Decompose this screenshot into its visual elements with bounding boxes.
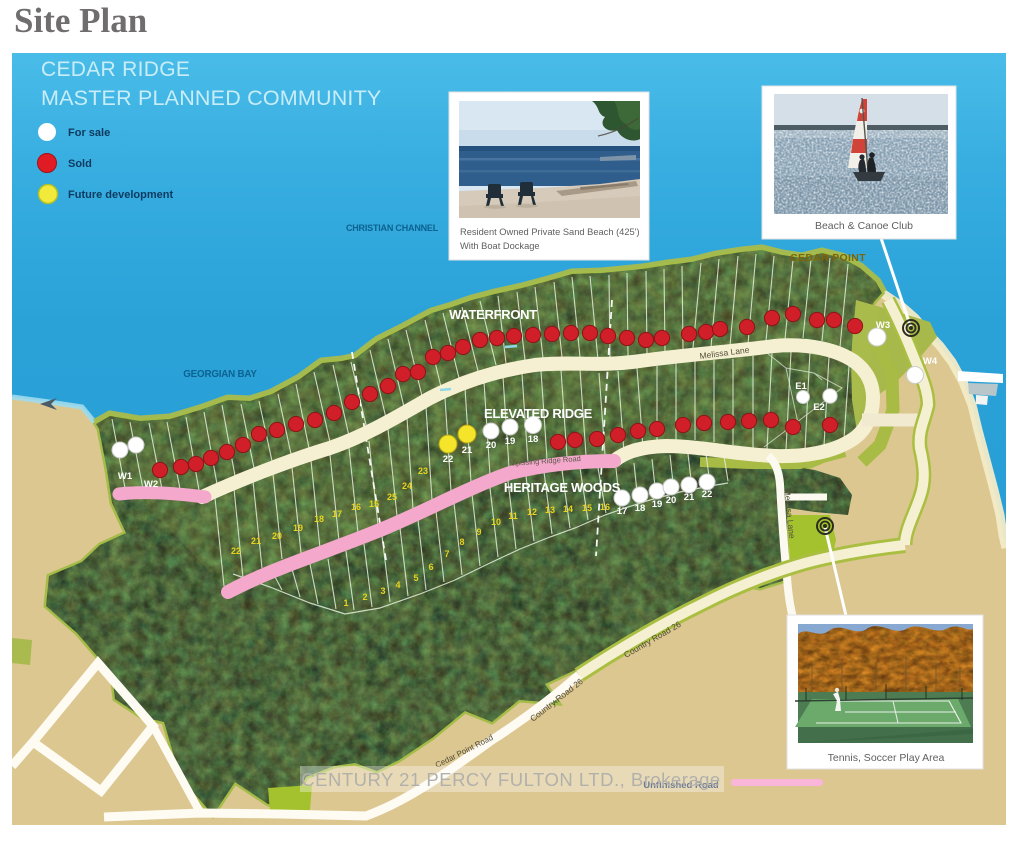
svg-text:19: 19 <box>505 436 516 447</box>
svg-text:20: 20 <box>272 531 282 541</box>
svg-text:22: 22 <box>443 454 454 465</box>
svg-text:19: 19 <box>293 523 303 533</box>
svg-text:14: 14 <box>563 504 573 514</box>
svg-text:HERITAGE WOODS: HERITAGE WOODS <box>504 480 621 495</box>
svg-text:MASTER PLANNED COMMUNITY: MASTER PLANNED COMMUNITY <box>41 86 381 110</box>
svg-text:17: 17 <box>332 509 342 519</box>
svg-text:E2: E2 <box>813 402 825 413</box>
svg-text:CHRISTIAN CHANNEL: CHRISTIAN CHANNEL <box>346 223 439 233</box>
svg-text:2: 2 <box>362 592 367 602</box>
svg-text:CEDAR POINT: CEDAR POINT <box>790 252 866 264</box>
svg-text:W3: W3 <box>876 320 890 331</box>
svg-text:For sale: For sale <box>68 127 110 139</box>
svg-text:19: 19 <box>652 499 663 510</box>
svg-text:17: 17 <box>617 506 628 517</box>
svg-text:25: 25 <box>387 492 397 502</box>
svg-text:20: 20 <box>666 495 677 506</box>
svg-text:18: 18 <box>528 434 539 445</box>
svg-text:10: 10 <box>491 517 501 527</box>
svg-text:9: 9 <box>476 527 481 537</box>
svg-text:6: 6 <box>428 562 433 572</box>
svg-text:16: 16 <box>600 502 610 512</box>
svg-text:Sold: Sold <box>68 158 92 170</box>
svg-text:8: 8 <box>459 537 464 547</box>
svg-text:W2: W2 <box>144 479 158 490</box>
svg-text:ELEVATED RIDGE: ELEVATED RIDGE <box>484 406 593 421</box>
svg-text:WATERFRONT: WATERFRONT <box>449 307 537 322</box>
svg-text:12: 12 <box>527 507 537 517</box>
svg-text:18: 18 <box>635 503 646 514</box>
svg-text:1: 1 <box>343 598 348 608</box>
svg-text:Resident Owned Private Sand Be: Resident Owned Private Sand Beach (425') <box>460 227 640 237</box>
svg-text:GEORGIAN BAY: GEORGIAN BAY <box>183 369 257 380</box>
svg-text:Future development: Future development <box>68 189 173 201</box>
svg-text:CEDAR RIDGE: CEDAR RIDGE <box>41 58 190 81</box>
svg-text:22: 22 <box>702 489 713 500</box>
svg-text:7: 7 <box>444 549 449 559</box>
svg-text:With Boat Dockage: With Boat Dockage <box>460 241 540 251</box>
svg-text:11: 11 <box>508 511 518 521</box>
svg-text:CENTURY 21 PERCY FULTON LTD.,: CENTURY 21 PERCY FULTON LTD., Brokerage <box>301 769 720 790</box>
svg-text:22: 22 <box>231 546 241 556</box>
svg-text:3: 3 <box>380 586 385 596</box>
svg-text:Tennis, Soccer Play Area: Tennis, Soccer Play Area <box>828 752 945 764</box>
svg-text:W4: W4 <box>923 356 938 367</box>
svg-text:Beach & Canoe Club: Beach & Canoe Club <box>815 220 913 232</box>
svg-text:13: 13 <box>545 505 555 515</box>
svg-text:15: 15 <box>369 499 379 509</box>
svg-text:E1: E1 <box>795 381 807 392</box>
svg-text:24: 24 <box>402 481 412 491</box>
svg-text:21: 21 <box>251 536 261 546</box>
svg-text:5: 5 <box>413 573 418 583</box>
svg-text:21: 21 <box>684 492 695 503</box>
svg-text:18: 18 <box>314 514 324 524</box>
svg-text:15: 15 <box>582 503 592 513</box>
svg-text:W1: W1 <box>118 471 133 482</box>
svg-text:21: 21 <box>462 445 473 456</box>
svg-text:4: 4 <box>395 580 400 590</box>
svg-text:23: 23 <box>418 466 428 476</box>
svg-text:20: 20 <box>486 440 497 451</box>
svg-text:16: 16 <box>351 502 361 512</box>
